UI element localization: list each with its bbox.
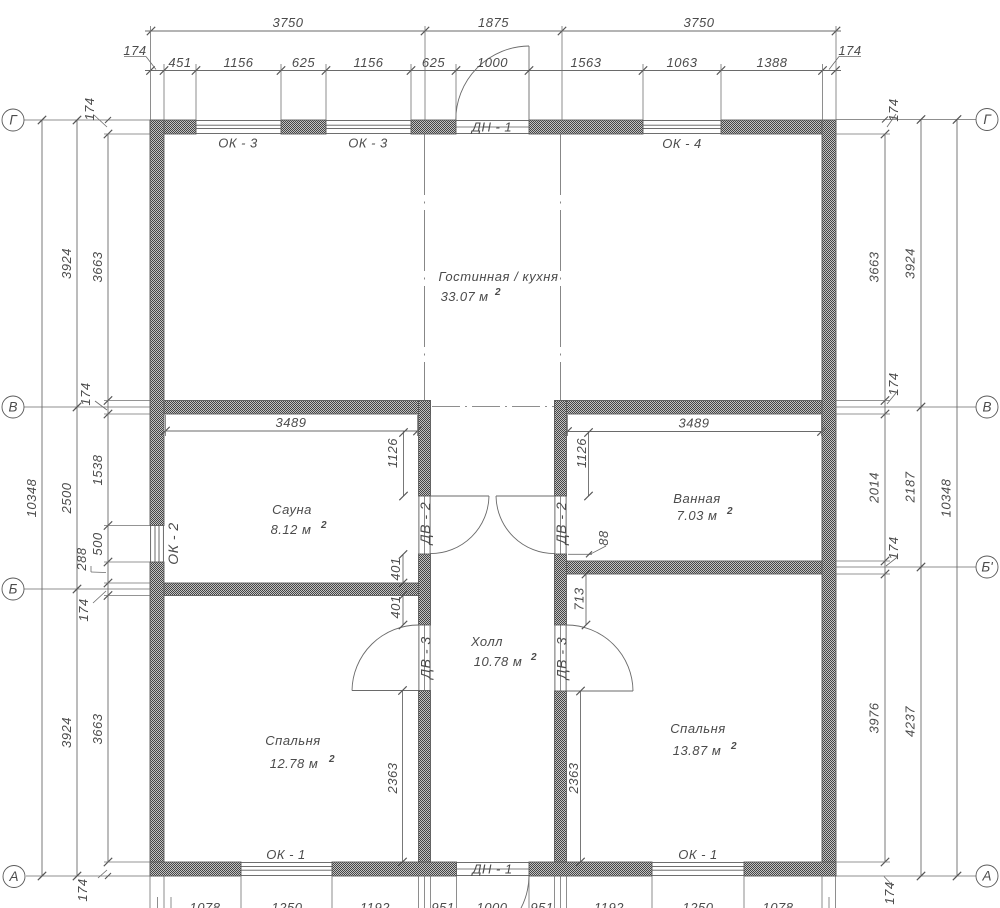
svg-text:2: 2 [726,506,733,517]
svg-text:3924: 3924 [59,248,74,279]
svg-text:625: 625 [292,55,315,70]
svg-text:ДВ - 3: ДВ - 3 [417,636,433,680]
svg-text:4237: 4237 [903,706,918,737]
svg-text:8.12 м: 8.12 м [271,522,312,537]
svg-text:2: 2 [328,754,335,765]
svg-text:713: 713 [572,587,587,610]
svg-text:2: 2 [730,741,737,752]
svg-text:2363: 2363 [385,762,400,794]
svg-text:Холл: Холл [470,634,503,649]
svg-text:1250: 1250 [272,900,303,908]
svg-text:Б': Б' [981,560,993,575]
svg-text:3750: 3750 [273,15,304,30]
svg-text:А: А [981,869,991,884]
svg-text:174: 174 [123,43,146,58]
svg-text:288: 288 [74,547,89,571]
svg-text:Спальня: Спальня [670,721,725,736]
svg-text:625: 625 [422,55,445,70]
svg-text:А: А [8,869,18,884]
svg-text:2363: 2363 [566,762,581,794]
svg-text:1875: 1875 [478,15,509,30]
svg-text:951: 951 [530,900,553,908]
svg-text:3489: 3489 [679,416,710,431]
svg-text:174: 174 [886,372,901,395]
svg-text:401: 401 [388,595,403,618]
svg-text:1078: 1078 [763,900,794,908]
svg-text:Спальня: Спальня [265,733,320,748]
svg-text:3924: 3924 [59,717,74,748]
svg-text:174: 174 [76,598,91,621]
svg-text:1192: 1192 [594,900,624,908]
svg-text:951: 951 [431,900,454,908]
svg-text:174: 174 [75,878,90,901]
svg-text:ДВ - 2: ДВ - 2 [417,502,433,546]
svg-text:500: 500 [90,532,105,555]
svg-text:3750: 3750 [684,15,715,30]
svg-text:ОК - 3: ОК - 3 [348,136,388,151]
svg-text:451: 451 [168,55,191,70]
svg-text:174: 174 [82,97,97,120]
svg-text:2: 2 [530,652,537,663]
svg-text:174: 174 [882,881,897,904]
svg-text:1388: 1388 [757,55,788,70]
svg-text:Сауна: Сауна [272,502,312,517]
svg-text:1063: 1063 [667,55,698,70]
svg-text:2014: 2014 [867,472,882,504]
svg-text:10.78 м: 10.78 м [474,654,523,669]
svg-text:10348: 10348 [939,478,954,517]
svg-text:2187: 2187 [903,471,918,503]
svg-text:ДВ - 2: ДВ - 2 [553,502,569,546]
svg-text:3976: 3976 [867,702,882,733]
svg-text:1156: 1156 [354,55,384,70]
svg-text:ОК - 3: ОК - 3 [218,136,258,151]
svg-text:3663: 3663 [90,713,105,744]
svg-text:Ванная: Ванная [673,491,720,506]
svg-text:ОК - 4: ОК - 4 [662,136,702,151]
svg-text:1078: 1078 [190,900,221,908]
svg-text:ДН - 1: ДН - 1 [470,120,512,135]
svg-text:10348: 10348 [24,478,39,517]
svg-text:2: 2 [320,520,327,531]
svg-text:12.78 м: 12.78 м [270,756,319,771]
svg-text:1156: 1156 [224,55,254,70]
svg-text:13.87 м: 13.87 м [673,743,722,758]
svg-text:В: В [982,400,991,415]
svg-text:1192: 1192 [360,900,390,908]
svg-text:1000: 1000 [477,55,508,70]
svg-text:3663: 3663 [867,251,882,282]
svg-text:33.07 м: 33.07 м [441,289,489,304]
svg-text:174: 174 [78,382,93,405]
svg-text:В: В [8,400,17,415]
svg-text:ОК - 2: ОК - 2 [165,522,181,564]
svg-text:1538: 1538 [90,454,105,485]
svg-text:88: 88 [596,530,611,546]
svg-text:3924: 3924 [903,248,918,279]
svg-text:ДН - 1: ДН - 1 [470,862,512,877]
svg-text:ОК - 1: ОК - 1 [678,847,718,862]
svg-text:7.03 м: 7.03 м [677,508,718,523]
svg-text:Б: Б [9,582,18,597]
svg-text:3663: 3663 [90,251,105,282]
svg-text:1563: 1563 [571,55,602,70]
svg-text:2: 2 [494,287,501,298]
svg-text:ОК - 1: ОК - 1 [266,847,306,862]
svg-text:2500: 2500 [59,482,74,514]
svg-text:174: 174 [838,43,861,58]
svg-text:401: 401 [388,557,403,580]
svg-text:Гостинная / кухня: Гостинная / кухня [438,269,558,284]
svg-text:1126: 1126 [574,438,589,468]
svg-text:ДВ - 3: ДВ - 3 [553,637,569,681]
svg-text:3489: 3489 [276,415,307,430]
svg-text:1250: 1250 [683,900,714,908]
svg-text:174: 174 [886,536,901,559]
svg-text:1000: 1000 [477,900,508,908]
svg-text:1126: 1126 [385,438,400,468]
